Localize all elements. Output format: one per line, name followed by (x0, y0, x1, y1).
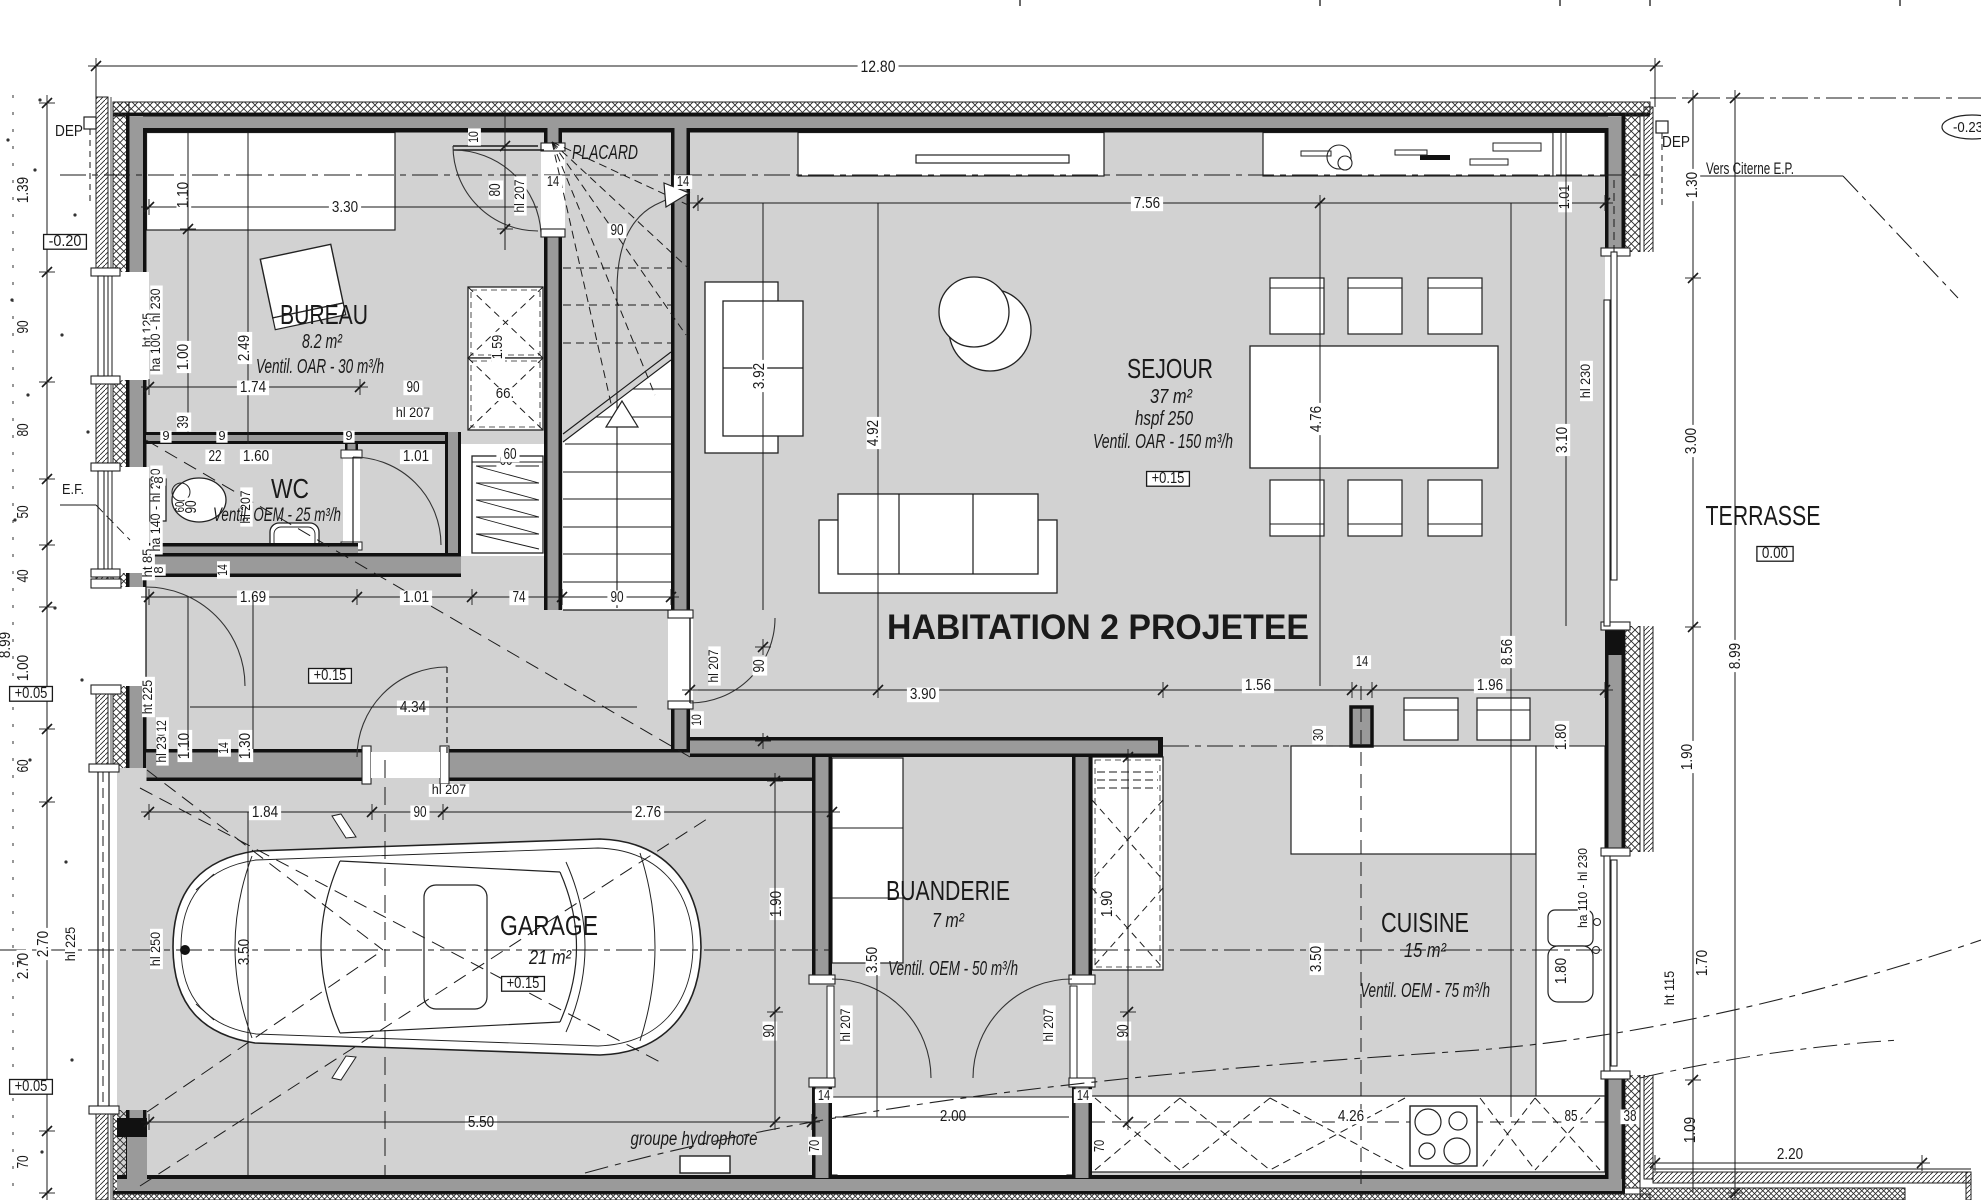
svg-text:3.00: 3.00 (1683, 428, 1700, 454)
svg-text:14: 14 (677, 173, 689, 190)
svg-text:1.80: 1.80 (1553, 724, 1570, 750)
svg-text:3.50: 3.50 (236, 939, 253, 965)
svg-text:3.90: 3.90 (910, 686, 936, 703)
svg-text:1.80: 1.80 (1553, 958, 1570, 984)
svg-text:+0.05: +0.05 (15, 685, 48, 702)
svg-text:BUREAU: BUREAU (280, 299, 368, 330)
svg-text:38: 38 (1623, 1108, 1636, 1125)
svg-text:1.30: 1.30 (237, 733, 254, 759)
svg-text:+0.05: +0.05 (15, 1078, 48, 1095)
svg-text:2.76: 2.76 (635, 804, 661, 821)
svg-text:1.59: 1.59 (489, 335, 506, 360)
svg-text:HABITATION 2 PROJETEE: HABITATION 2 PROJETEE (887, 608, 1309, 647)
svg-text:DEP: DEP (1662, 134, 1690, 151)
svg-text:10: 10 (465, 131, 481, 143)
svg-text:9: 9 (345, 428, 352, 443)
svg-text:hl 230: hl 230 (1577, 364, 1593, 399)
svg-text:1.09: 1.09 (1682, 1117, 1699, 1143)
svg-text:2.70: 2.70 (15, 953, 32, 979)
svg-text:1.60: 1.60 (243, 448, 269, 465)
svg-text:70: 70 (15, 1155, 32, 1168)
svg-text:50: 50 (15, 505, 32, 518)
svg-text:Ventil. OEM - 50 m³/h: Ventil. OEM - 50 m³/h (888, 958, 1018, 980)
svg-text:7.56: 7.56 (1134, 195, 1160, 212)
svg-text:E.F.: E.F. (62, 481, 84, 498)
svg-text:TERRASSE: TERRASSE (1706, 500, 1821, 531)
svg-text:CUISINE: CUISINE (1381, 907, 1469, 938)
svg-text:GARAGE: GARAGE (500, 910, 598, 941)
svg-text:1.00: 1.00 (15, 655, 32, 681)
svg-text:22: 22 (208, 448, 221, 465)
svg-text:-0.23: -0.23 (1953, 119, 1981, 136)
svg-text:1.84: 1.84 (252, 804, 278, 821)
svg-text:14: 14 (1356, 653, 1368, 670)
svg-text:8.2 m²: 8.2 m² (302, 331, 343, 353)
svg-text:85: 85 (1564, 1108, 1577, 1125)
svg-text:74: 74 (512, 589, 525, 606)
svg-text:66.: 66. (496, 385, 514, 402)
svg-text:1.10: 1.10 (176, 733, 193, 759)
svg-text:Ventil. OAR - 30 m³/h: Ventil. OAR - 30 m³/h (256, 356, 384, 378)
svg-text:hl 207: hl 207 (432, 781, 467, 797)
svg-text:+0.15: +0.15 (314, 667, 347, 684)
svg-text:hl 207: hl 207 (1041, 1008, 1056, 1041)
svg-text:Ventil. OEM - 25 m³/h: Ventil. OEM - 25 m³/h (213, 505, 341, 526)
svg-text:90: 90 (610, 589, 623, 606)
svg-text:1.74: 1.74 (240, 379, 266, 396)
svg-text:3.10: 3.10 (1554, 427, 1571, 453)
svg-text:12: 12 (153, 720, 169, 732)
svg-text:3.50: 3.50 (864, 947, 881, 973)
svg-text:3.50: 3.50 (1308, 946, 1325, 972)
svg-text:1.96: 1.96 (1477, 677, 1503, 694)
svg-text:ht 225: ht 225 (139, 680, 155, 715)
svg-text:1.10: 1.10 (175, 182, 192, 208)
svg-text:hl 207: hl 207 (838, 1008, 853, 1041)
svg-text:2.20: 2.20 (1777, 1146, 1803, 1163)
svg-text:1.70: 1.70 (1694, 950, 1711, 976)
svg-text:30: 30 (1310, 729, 1327, 741)
svg-text:ha 110 - hl 230: ha 110 - hl 230 (1575, 848, 1590, 928)
svg-text:1.00: 1.00 (175, 344, 192, 370)
svg-text:90: 90 (610, 222, 623, 239)
svg-text:8.99: 8.99 (0, 632, 14, 658)
svg-text:39: 39 (175, 415, 192, 428)
svg-text:hl 207: hl 207 (706, 649, 721, 682)
svg-text:15 m²: 15 m² (1404, 940, 1447, 962)
svg-text:90: 90 (15, 320, 32, 333)
svg-text:1.90: 1.90 (1099, 891, 1116, 917)
svg-text:14: 14 (547, 173, 559, 190)
svg-text:60: 60 (172, 502, 187, 513)
svg-text:1.01: 1.01 (403, 448, 429, 465)
svg-text:-0.20: -0.20 (49, 233, 82, 250)
svg-text:hl 250: hl 250 (147, 932, 163, 967)
svg-text:0.00: 0.00 (1762, 545, 1788, 562)
svg-text:SEJOUR: SEJOUR (1127, 353, 1213, 384)
svg-text:1.39: 1.39 (15, 177, 32, 203)
svg-text:2.49: 2.49 (236, 335, 253, 361)
svg-text:ht 115: ht 115 (1661, 971, 1677, 1006)
svg-text:DEP: DEP (55, 123, 83, 140)
svg-text:8: 8 (151, 566, 166, 573)
svg-text:1.30: 1.30 (1684, 172, 1701, 198)
svg-text:7 m²: 7 m² (932, 910, 965, 932)
svg-text:Ventil. OAR - 150 m³/h: Ventil. OAR - 150 m³/h (1093, 431, 1233, 453)
svg-text:4.26: 4.26 (1338, 1108, 1364, 1125)
svg-text:90: 90 (406, 379, 419, 396)
svg-text:60: 60 (503, 446, 516, 463)
svg-text:8.99: 8.99 (1727, 643, 1744, 669)
svg-text:14: 14 (1077, 1087, 1089, 1104)
svg-text:21 m²: 21 m² (528, 947, 572, 969)
svg-text:WC: WC (271, 473, 309, 504)
svg-text:1.01: 1.01 (403, 589, 429, 606)
svg-text:+0.15: +0.15 (507, 975, 540, 992)
svg-text:80: 80 (487, 183, 504, 196)
svg-text:1.90: 1.90 (1679, 744, 1696, 770)
svg-text:70: 70 (806, 1140, 823, 1152)
svg-text:Vers Citerne E.P.: Vers Citerne E.P. (1706, 159, 1794, 178)
svg-text:2.70: 2.70 (35, 931, 52, 957)
svg-text:groupe hydrophore: groupe hydrophore (631, 1129, 758, 1150)
svg-text:hl 207: hl 207 (512, 179, 527, 212)
svg-text:90: 90 (1115, 1024, 1132, 1037)
svg-text:4.76: 4.76 (1308, 406, 1325, 432)
svg-text:hspf 250: hspf 250 (1135, 408, 1193, 430)
svg-text:14: 14 (818, 1087, 830, 1104)
svg-text:12.80: 12.80 (861, 57, 896, 76)
svg-text:1.01: 1.01 (1556, 185, 1573, 210)
svg-text:hl 207: hl 207 (396, 404, 431, 420)
svg-text:40: 40 (15, 569, 32, 582)
svg-text:70: 70 (1091, 1140, 1108, 1152)
svg-text:90: 90 (751, 659, 768, 672)
svg-text:90: 90 (413, 804, 426, 821)
svg-text:Ventil. OEM - 75 m³/h: Ventil. OEM - 75 m³/h (1360, 980, 1490, 1002)
svg-text:BUANDERIE: BUANDERIE (886, 875, 1010, 906)
svg-text:9: 9 (162, 428, 169, 443)
svg-text:8.56: 8.56 (1499, 639, 1516, 665)
svg-text:1.90: 1.90 (768, 891, 785, 917)
svg-text:14: 14 (214, 564, 230, 576)
svg-text:+0.15: +0.15 (1152, 470, 1185, 487)
svg-text:1.56: 1.56 (1245, 677, 1271, 694)
svg-text:hl 225: hl 225 (62, 927, 78, 962)
svg-text:PLACARD: PLACARD (572, 142, 638, 164)
svg-text:3.92: 3.92 (751, 363, 768, 389)
svg-text:37 m²: 37 m² (1150, 386, 1193, 408)
svg-text:80: 80 (15, 423, 32, 436)
svg-text:9: 9 (218, 428, 225, 443)
svg-text:8: 8 (151, 476, 166, 483)
svg-text:10: 10 (688, 714, 704, 726)
svg-text:14: 14 (215, 742, 231, 754)
svg-text:3.30: 3.30 (332, 199, 358, 216)
svg-text:ha 100 - hl 230: ha 100 - hl 230 (148, 289, 163, 372)
svg-text:4.92: 4.92 (865, 420, 882, 446)
